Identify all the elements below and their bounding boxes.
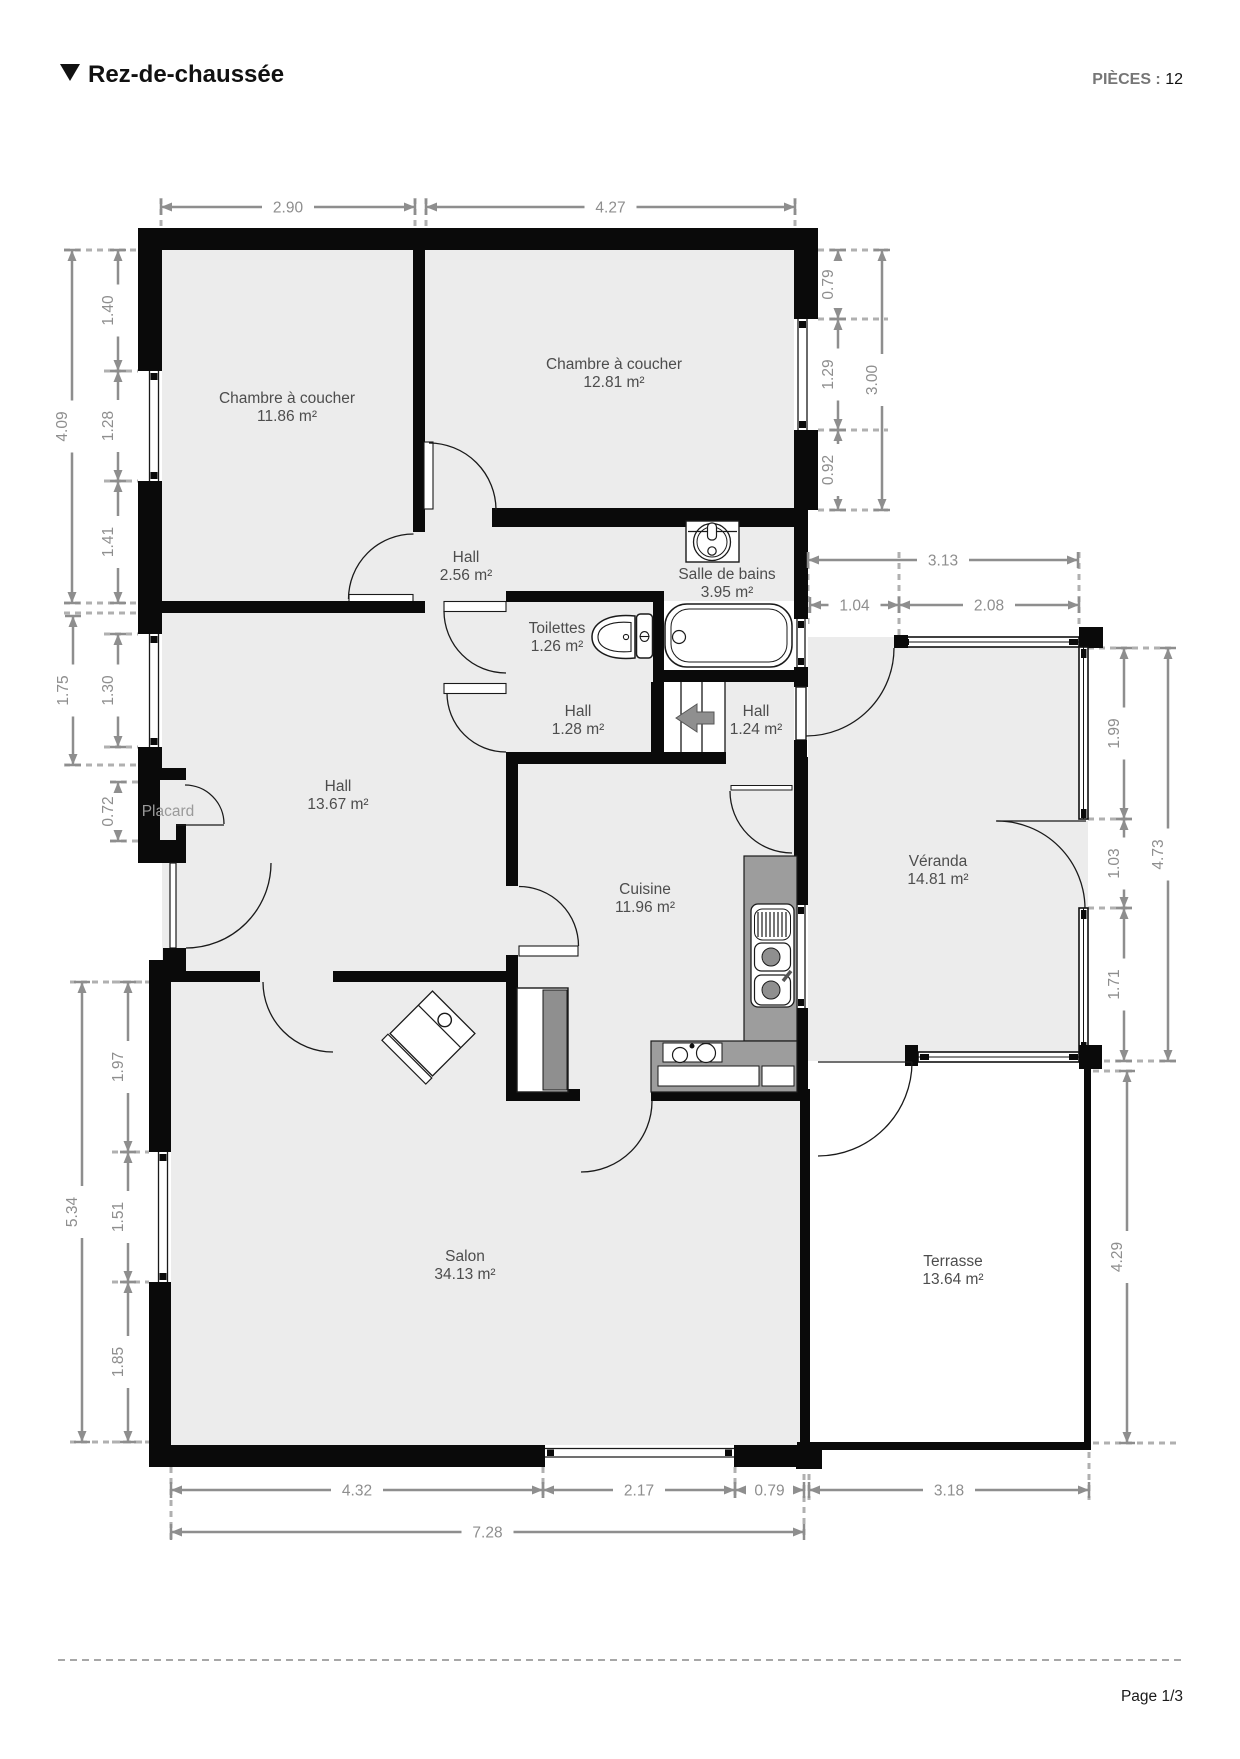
svg-text:2.56 m²: 2.56 m² — [440, 567, 493, 584]
svg-text:PIÈCES : 12: PIÈCES : 12 — [1092, 69, 1183, 88]
svg-text:1.71: 1.71 — [1106, 969, 1123, 999]
svg-text:1.28: 1.28 — [100, 411, 117, 441]
svg-text:4.27: 4.27 — [595, 200, 625, 217]
svg-text:Hall: Hall — [325, 778, 352, 795]
svg-text:4.09: 4.09 — [54, 411, 71, 441]
svg-text:4.29: 4.29 — [1109, 1242, 1126, 1272]
svg-text:13.67 m²: 13.67 m² — [307, 796, 368, 813]
svg-text:1.03: 1.03 — [1106, 848, 1123, 878]
svg-text:3.00: 3.00 — [864, 365, 881, 396]
svg-text:3.95 m²: 3.95 m² — [701, 584, 754, 601]
svg-text:Hall: Hall — [565, 703, 592, 720]
svg-text:1.29: 1.29 — [820, 359, 837, 389]
svg-text:11.96 m²: 11.96 m² — [615, 899, 675, 916]
svg-text:Rez-de-chaussée: Rez-de-chaussée — [88, 61, 284, 88]
svg-text:Chambre à coucher: Chambre à coucher — [219, 390, 355, 407]
svg-text:1.75: 1.75 — [55, 675, 72, 705]
svg-text:2.17: 2.17 — [624, 1483, 654, 1500]
svg-text:Salle de bains: Salle de bains — [678, 566, 776, 583]
svg-text:Cuisine: Cuisine — [619, 881, 671, 898]
svg-text:4.32: 4.32 — [342, 1483, 372, 1500]
svg-text:2.90: 2.90 — [273, 200, 304, 217]
svg-text:1.26 m²: 1.26 m² — [531, 638, 584, 655]
svg-text:Page 1/3: Page 1/3 — [1121, 1688, 1183, 1705]
svg-text:4.73: 4.73 — [1150, 839, 1167, 869]
svg-text:1.41: 1.41 — [100, 527, 117, 557]
svg-text:Hall: Hall — [743, 703, 770, 720]
svg-text:1.99: 1.99 — [1106, 718, 1123, 748]
svg-text:11.86 m²: 11.86 m² — [257, 408, 317, 425]
svg-text:1.97: 1.97 — [110, 1052, 127, 1082]
svg-text:34.13 m²: 34.13 m² — [434, 1266, 495, 1283]
svg-text:1.04: 1.04 — [839, 598, 870, 615]
svg-text:Hall: Hall — [453, 549, 480, 566]
svg-text:5.34: 5.34 — [64, 1197, 81, 1228]
svg-text:7.28: 7.28 — [472, 1525, 502, 1542]
svg-text:0.79: 0.79 — [754, 1483, 784, 1500]
svg-text:12.81 m²: 12.81 m² — [583, 374, 644, 391]
svg-text:0.92: 0.92 — [820, 455, 837, 485]
svg-text:1.85: 1.85 — [110, 1347, 127, 1377]
svg-text:1.40: 1.40 — [100, 295, 117, 326]
svg-text:0.79: 0.79 — [820, 269, 837, 299]
svg-text:Salon: Salon — [445, 1248, 485, 1265]
svg-text:2.08: 2.08 — [974, 598, 1004, 615]
svg-text:13.64 m²: 13.64 m² — [922, 1271, 983, 1288]
svg-text:1.28 m²: 1.28 m² — [552, 721, 605, 738]
svg-text:Chambre à coucher: Chambre à coucher — [546, 356, 682, 373]
svg-text:Véranda: Véranda — [909, 853, 968, 870]
svg-text:3.18: 3.18 — [934, 1483, 964, 1500]
svg-text:14.81 m²: 14.81 m² — [907, 871, 968, 888]
svg-text:Terrasse: Terrasse — [923, 1253, 982, 1270]
svg-text:3.13: 3.13 — [928, 553, 958, 570]
svg-text:0.72: 0.72 — [100, 796, 117, 826]
svg-text:Toilettes: Toilettes — [529, 620, 586, 637]
svg-text:1.30: 1.30 — [100, 675, 117, 706]
svg-text:1.51: 1.51 — [110, 1202, 127, 1232]
svg-text:1.24 m²: 1.24 m² — [730, 721, 783, 738]
svg-text:Placard: Placard — [142, 803, 195, 820]
